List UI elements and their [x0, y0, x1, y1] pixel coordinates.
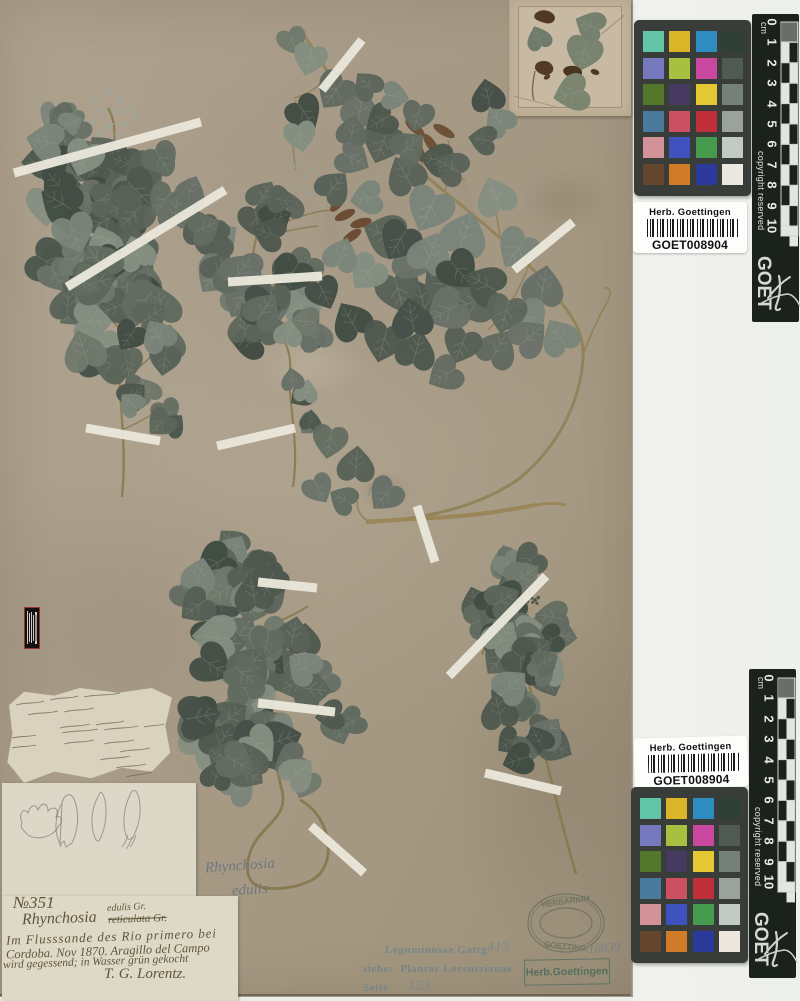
svg-text:4: 4: [765, 100, 780, 108]
svg-text:0: 0: [765, 18, 780, 25]
svg-text:1: 1: [765, 38, 780, 45]
svg-text:3: 3: [762, 735, 777, 742]
svg-text:2: 2: [762, 715, 777, 722]
svg-text:5: 5: [762, 776, 777, 783]
svg-text:5: 5: [765, 120, 780, 127]
svg-text:HERBARIUM: HERBARIUM: [541, 894, 591, 910]
svg-text:GOETTING.: GOETTING.: [544, 940, 589, 954]
svg-text:copyright reserved: copyright reserved: [753, 807, 763, 886]
svg-text:4: 4: [762, 756, 777, 764]
svg-text:6: 6: [765, 140, 780, 147]
svg-text:6: 6: [762, 796, 777, 803]
svg-text:copyright reserved: copyright reserved: [756, 151, 766, 230]
svg-text:3: 3: [765, 79, 780, 86]
svg-text:0: 0: [762, 674, 777, 681]
svg-text:2: 2: [765, 59, 780, 66]
svg-text:1: 1: [762, 694, 777, 701]
